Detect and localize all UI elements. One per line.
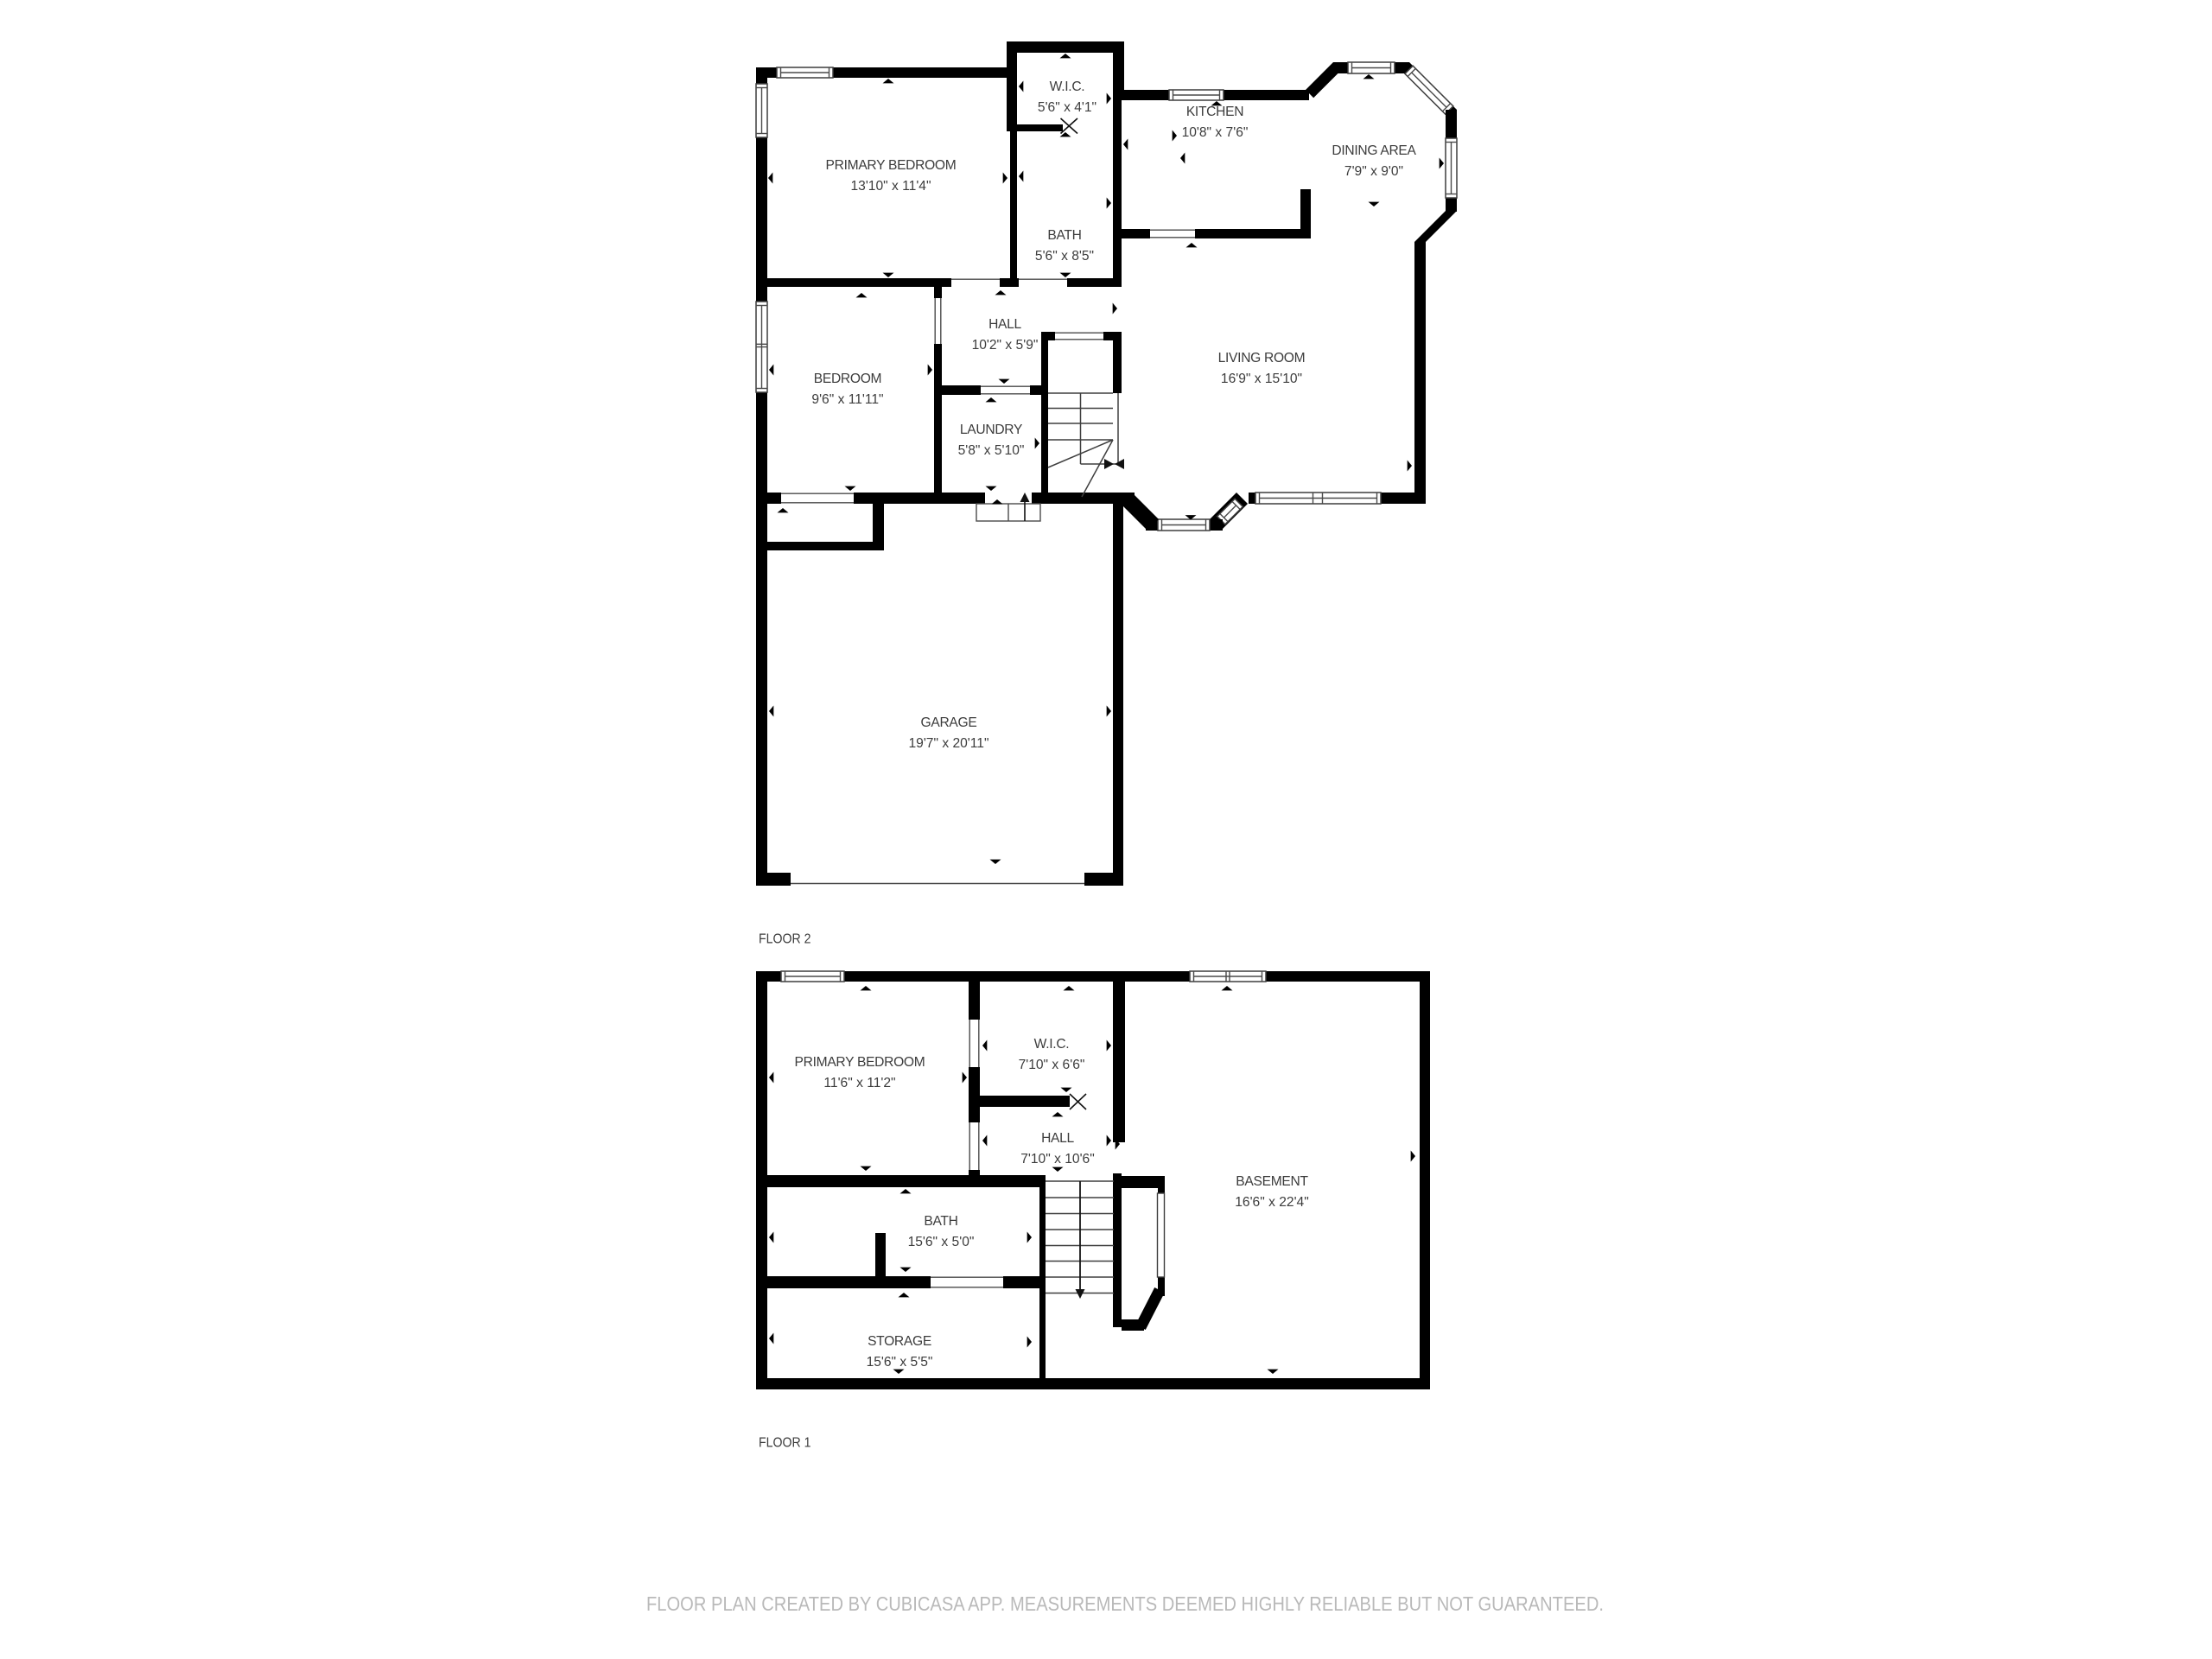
svg-text:HALL: HALL	[988, 317, 1021, 332]
svg-text:FLOOR 1: FLOOR 1	[759, 1436, 811, 1451]
svg-text:5'6" x 8'5": 5'6" x 8'5"	[1035, 249, 1094, 264]
svg-text:GARAGE: GARAGE	[921, 715, 977, 730]
svg-text:10'8" x 7'6": 10'8" x 7'6"	[1182, 125, 1249, 140]
svg-text:15'6" x 5'0": 15'6" x 5'0"	[908, 1235, 975, 1249]
svg-text:7'10" x 6'6": 7'10" x 6'6"	[1019, 1058, 1085, 1072]
svg-text:LIVING ROOM: LIVING ROOM	[1218, 351, 1306, 365]
svg-text:5'6" x 4'1": 5'6" x 4'1"	[1038, 100, 1096, 115]
svg-text:LAUNDRY: LAUNDRY	[960, 423, 1023, 437]
svg-text:PRIMARY BEDROOM: PRIMARY BEDROOM	[826, 158, 957, 173]
svg-text:DINING AREA: DINING AREA	[1332, 143, 1416, 158]
svg-text:FLOOR PLAN CREATED BY CUBICASA: FLOOR PLAN CREATED BY CUBICASA APP. MEAS…	[646, 1592, 1604, 1615]
svg-text:BATH: BATH	[1047, 228, 1081, 243]
svg-text:15'6" x 5'5": 15'6" x 5'5"	[867, 1355, 933, 1370]
svg-text:STORAGE: STORAGE	[868, 1334, 931, 1349]
svg-text:7'10" x 10'6": 7'10" x 10'6"	[1020, 1152, 1095, 1166]
svg-text:HALL: HALL	[1041, 1131, 1074, 1146]
svg-text:16'9" x 15'10": 16'9" x 15'10"	[1221, 372, 1302, 386]
svg-text:5'8" x 5'10": 5'8" x 5'10"	[958, 443, 1025, 458]
svg-text:19'7" x 20'11": 19'7" x 20'11"	[908, 736, 988, 751]
svg-text:W.I.C.: W.I.C.	[1050, 79, 1085, 94]
svg-text:FLOOR 2: FLOOR 2	[759, 932, 811, 947]
svg-text:KITCHEN: KITCHEN	[1186, 105, 1243, 119]
svg-text:BATH: BATH	[924, 1214, 957, 1229]
svg-text:BEDROOM: BEDROOM	[814, 372, 881, 386]
svg-text:7'9" x 9'0": 7'9" x 9'0"	[1344, 164, 1403, 179]
svg-text:PRIMARY BEDROOM: PRIMARY BEDROOM	[795, 1055, 925, 1070]
svg-text:BASEMENT: BASEMENT	[1236, 1174, 1308, 1189]
svg-text:13'10" x 11'4": 13'10" x 11'4"	[850, 179, 931, 194]
svg-text:16'6" x 22'4": 16'6" x 22'4"	[1235, 1195, 1309, 1210]
svg-text:11'6" x 11'2": 11'6" x 11'2"	[823, 1076, 895, 1090]
svg-text:10'2" x 5'9": 10'2" x 5'9"	[972, 338, 1039, 353]
svg-text:W.I.C.: W.I.C.	[1034, 1037, 1070, 1052]
svg-text:9'6" x 11'11": 9'6" x 11'11"	[811, 392, 883, 407]
